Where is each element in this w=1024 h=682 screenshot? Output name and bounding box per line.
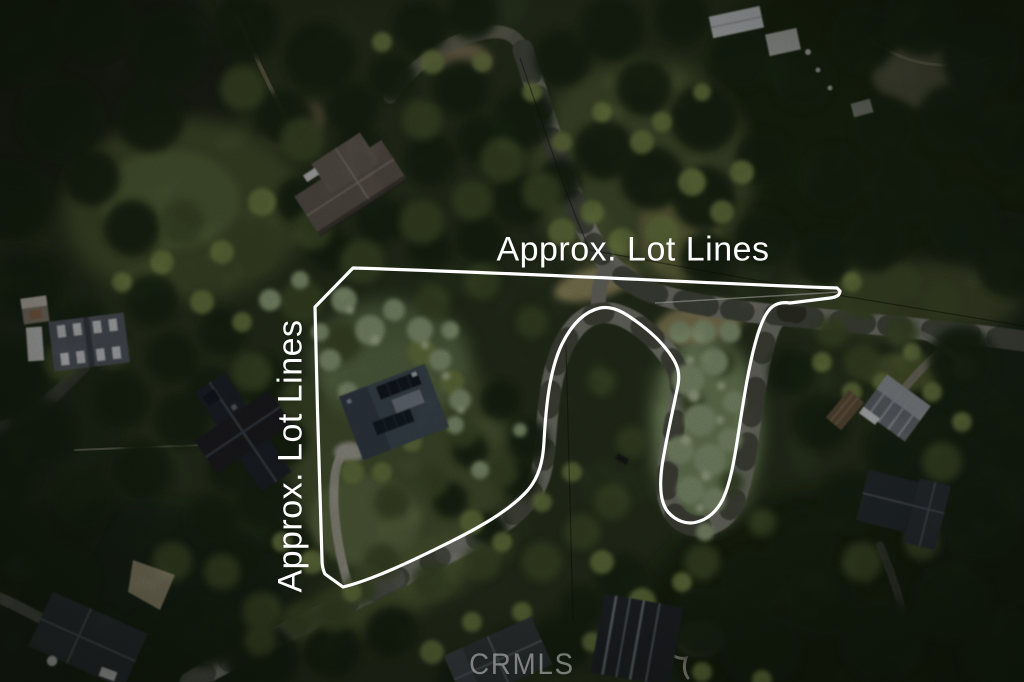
- screenshot-root: Approx. Lot Lines Approx. Lot Lines CRML…: [0, 0, 1024, 682]
- vignette: [0, 0, 1024, 682]
- lot-lines-label-left: Approx. Lot Lines: [272, 319, 311, 592]
- aerial-photo: [0, 0, 1024, 682]
- lot-lines-label-top: Approx. Lot Lines: [496, 231, 769, 270]
- crmls-watermark: CRMLS: [469, 648, 575, 682]
